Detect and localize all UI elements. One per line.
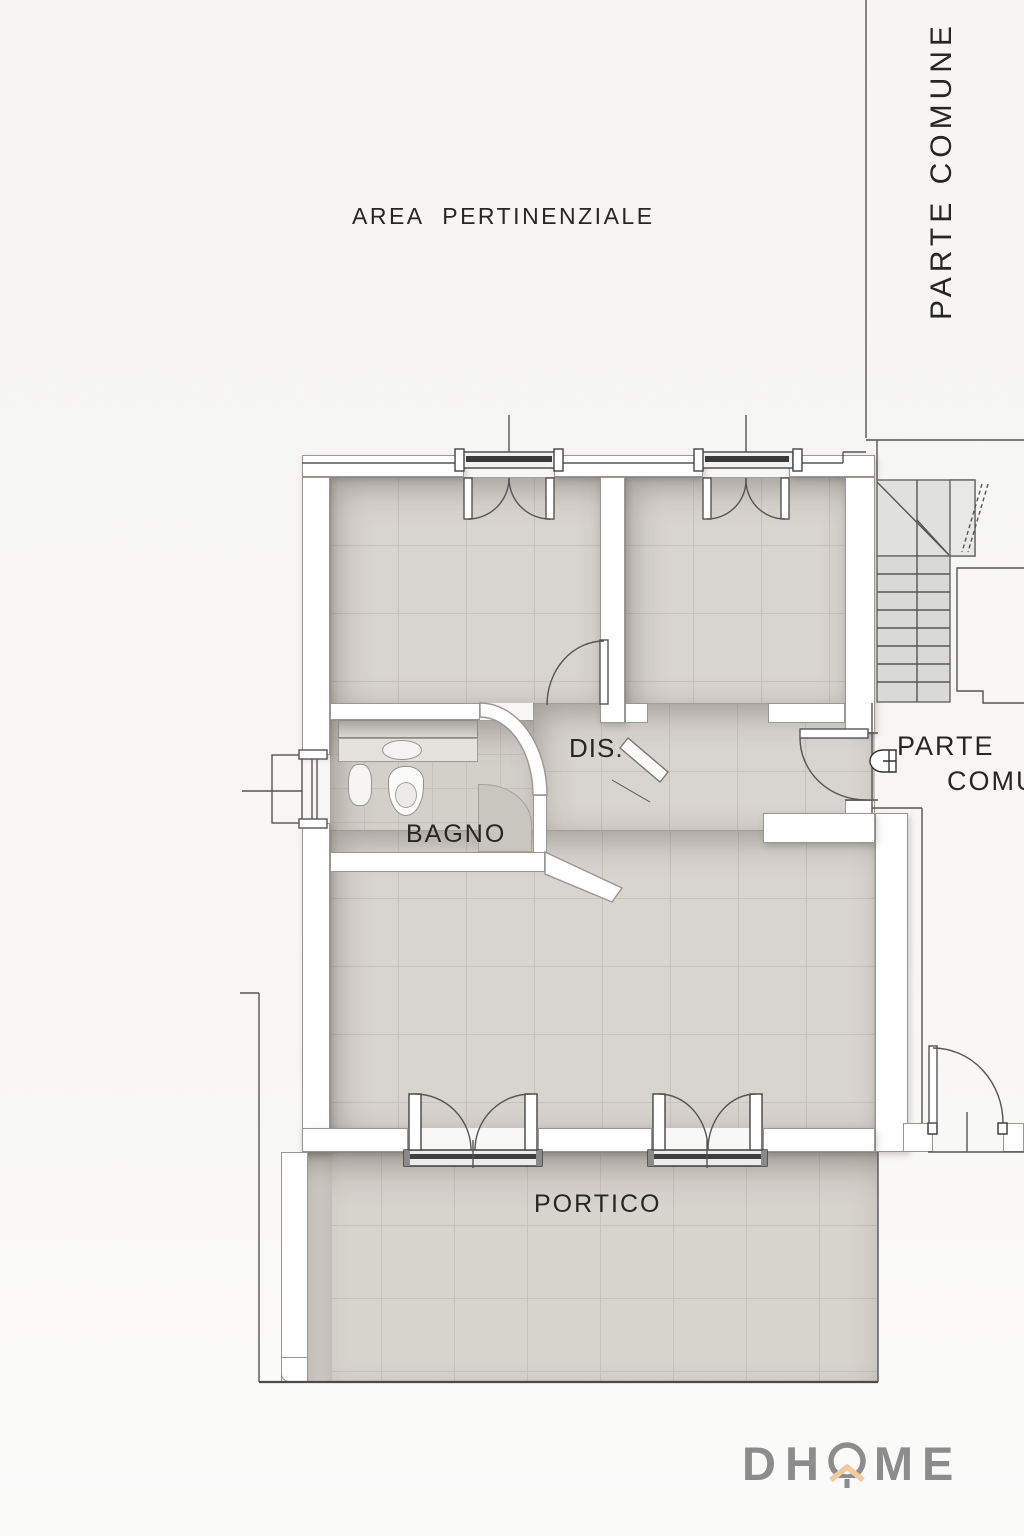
entry-door-swing: [800, 729, 878, 800]
parte-comune-label-line2: COMUNE: [947, 766, 1024, 797]
floor-plan: AREA PERTINENZIALE PARTE COMUNE PARTE CO…: [0, 0, 1024, 1536]
french-window-2: [694, 415, 802, 519]
portico-door-2: [648, 1094, 767, 1168]
portico-label: PORTICO: [534, 1190, 661, 1219]
portico-door-1: [404, 1094, 542, 1168]
dhome-logo-prefix: DH: [742, 1436, 828, 1491]
plan-linework: [0, 0, 1024, 1536]
wall-diagonal: [545, 852, 622, 902]
common-door-swing: [928, 1046, 1007, 1152]
french-window-1: [455, 415, 563, 519]
parte-comune-vertical-label: PARTE COMUNE: [925, 40, 959, 320]
area-pertinenziale-label: AREA PERTINENZIALE: [352, 203, 655, 230]
dis-label: DIS.: [569, 733, 624, 764]
door-camera1-swing: [547, 640, 608, 705]
bagno-label: BAGNO: [406, 820, 506, 849]
parte-comune-label-line1: PARTE: [897, 731, 995, 762]
dhome-logo-o-icon: [826, 1438, 868, 1490]
doorbell-icon: [870, 750, 896, 772]
bagno-curved-wall: [480, 703, 547, 795]
dhome-logo: DH ME: [742, 1436, 962, 1491]
staircase: [877, 480, 1024, 703]
bathroom-window: [272, 750, 327, 828]
dhome-logo-suffix: ME: [874, 1436, 963, 1491]
